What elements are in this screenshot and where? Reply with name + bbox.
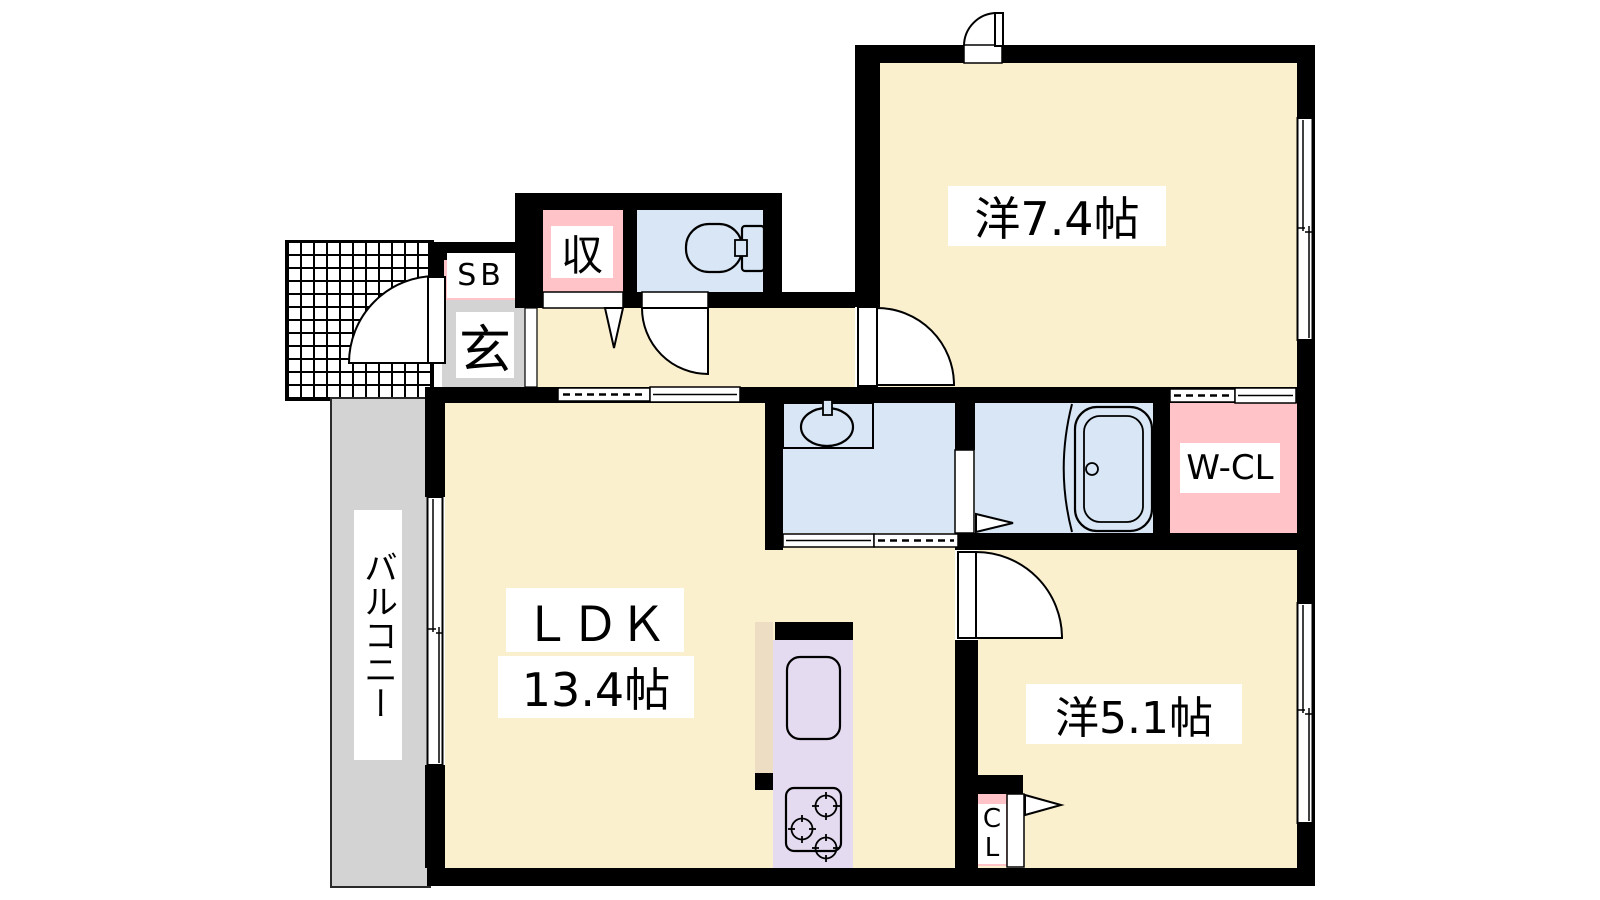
toilet-door-icon [642,292,708,374]
entrance-step-icon [525,308,537,387]
door-room74-north-icon [964,13,1003,63]
plan-symbols [0,0,1600,900]
sliding-door-washroom-icon [783,534,958,547]
walk-in-closet-label: W-CL [1180,443,1280,493]
window-ldk-west-icon [428,497,444,765]
entrance-door-icon [349,276,445,363]
room51-door-icon [958,552,1062,638]
bathtub-fixture-icon [1064,404,1152,532]
balcony-label: バルコニー [354,510,402,760]
room51-label: 洋5.1帖 [1026,684,1242,744]
entrance-label: 玄 [456,312,514,378]
washbasin-fixture-icon [783,400,873,448]
closet-door-icon [1007,794,1061,867]
room74-label: 洋7.4帖 [948,186,1166,246]
stove-fixture-icon [786,788,841,862]
ldk-label: ＬＤＫ [506,588,684,652]
window-room51-east-icon [1298,603,1313,823]
closet-label: CL [978,804,1006,864]
shoe-box-label: SB [447,253,515,298]
sliding-door-hallway-ldk-icon [558,387,740,402]
storage-folding-door-icon [543,292,623,348]
toilet-fixture-icon [686,224,764,272]
bathroom-door-icon [955,450,1013,533]
storage-label: 収 [551,226,613,278]
ldk-size-label: 13.4帖 [498,656,694,718]
window-room74-east-icon [1298,118,1313,340]
kitchen-sink-fixture-icon [787,657,840,739]
room74-door-icon [858,307,954,386]
sliding-door-wcl-icon [1170,388,1296,403]
floor-plan: 洋7.4帖 ＬＤＫ 13.4帖 洋5.1帖 バルコニー W-CL CL SB 玄… [0,0,1600,900]
